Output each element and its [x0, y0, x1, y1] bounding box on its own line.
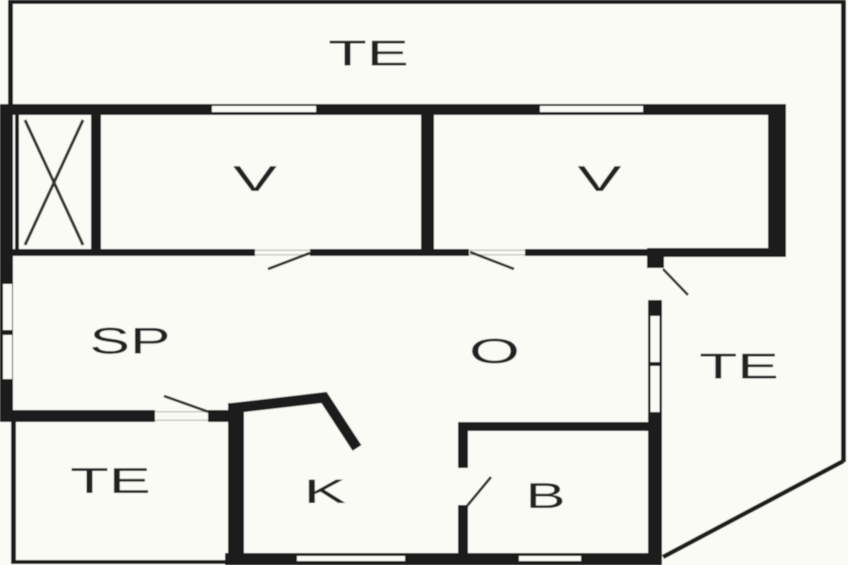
svg-text:TE: TE: [328, 33, 409, 74]
svg-text:V: V: [578, 158, 622, 199]
svg-text:B: B: [525, 475, 565, 516]
svg-text:V: V: [233, 158, 277, 199]
svg-text:TE: TE: [699, 346, 779, 387]
svg-text:SP: SP: [90, 321, 171, 362]
svg-text:TE: TE: [70, 460, 151, 501]
svg-text:O: O: [469, 332, 520, 371]
svg-text:K: K: [304, 473, 347, 511]
